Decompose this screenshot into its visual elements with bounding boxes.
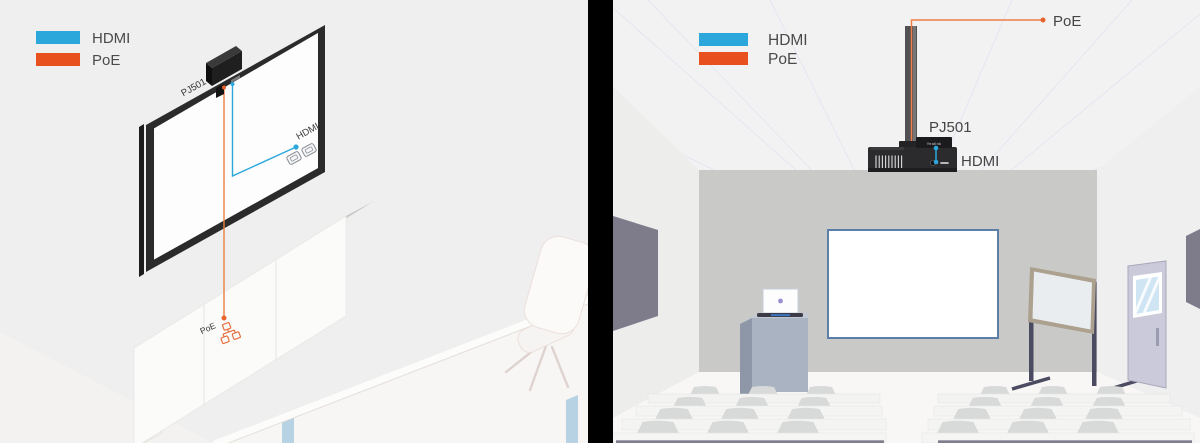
tv-side-edge	[139, 124, 144, 277]
hdmi-port-label: HDMI	[961, 153, 999, 170]
desk-block-right	[922, 386, 1194, 443]
tv-installation-scene: HDMI PoE	[0, 0, 588, 443]
right-wall-panel	[1186, 229, 1200, 309]
installation-diagram: HDMI PoE	[0, 0, 1200, 443]
laptop-logo	[778, 299, 783, 304]
pj501-device: Yealink	[916, 137, 952, 148]
hdmi-connection-dot	[293, 144, 298, 149]
legend-poe-swatch	[699, 52, 748, 65]
door-handle	[1156, 328, 1159, 346]
panel-divider	[588, 0, 613, 443]
legend-hdmi-label: HDMI	[768, 32, 808, 49]
door	[1128, 261, 1166, 388]
legend-hdmi-swatch	[699, 33, 748, 46]
projection-screen	[828, 230, 998, 338]
hdmi-connection-dot	[934, 160, 939, 165]
poe-drop-label: PoE	[1053, 13, 1081, 30]
legend-poe-label: PoE	[768, 51, 797, 68]
legend-poe-label: PoE	[92, 52, 120, 69]
laptop	[757, 289, 803, 317]
podium	[740, 313, 808, 399]
device-brand-label: Yealink	[927, 141, 942, 146]
left-wall-panel	[613, 216, 658, 331]
pole-highlight	[913, 26, 916, 148]
device-label: PJ501	[929, 119, 972, 136]
poe-connection-dot	[1041, 18, 1046, 23]
legend-hdmi-label: HDMI	[92, 30, 130, 47]
desk-block-left	[613, 386, 886, 443]
poe-connection-dot	[222, 316, 227, 321]
classroom-projector-scene: PoE Yealink PJ501	[613, 0, 1200, 443]
table-leg	[566, 395, 578, 443]
legend-hdmi-swatch	[36, 31, 80, 44]
legend-poe-swatch	[36, 53, 80, 66]
